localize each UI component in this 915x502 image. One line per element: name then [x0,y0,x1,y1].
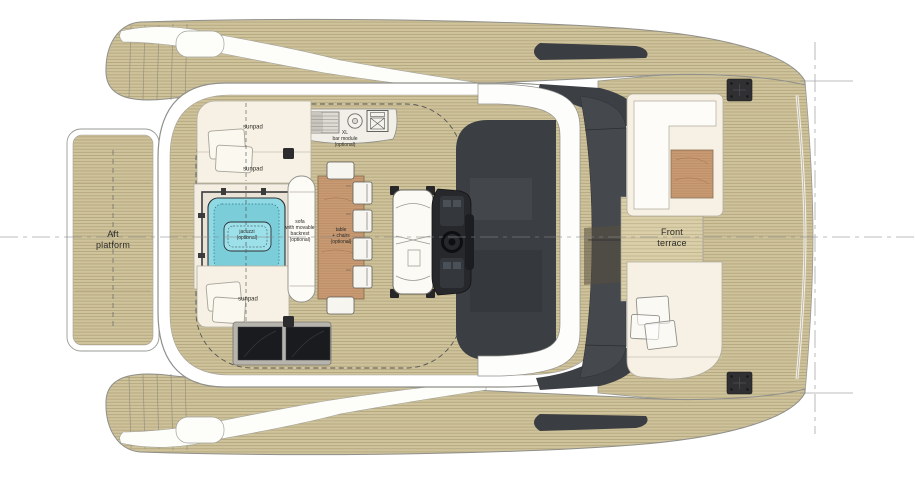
aft-platform [67,129,159,351]
chair [327,162,354,179]
bar-sink-drain [352,118,357,123]
deck-plan-drawing [0,0,915,502]
sunpad-zone-top [197,101,311,183]
bar-stove-icon [367,111,388,132]
flybridge-sofa [288,176,315,302]
sunpad-zone-bottom [197,266,289,327]
front-sofa [627,94,723,216]
glass-reflection-lower [470,250,542,312]
column-wood-reflection [584,225,625,285]
sofa-body [288,176,315,302]
glass-reflection-upper [470,178,532,220]
deck-fitting [283,316,294,327]
deck-plan-canvas: Aft platform Front terrace sunpad sunpad… [0,0,915,502]
console-side-pod [465,214,474,270]
bow-cleat-bottom [727,372,752,394]
console-screen [443,200,451,207]
bench-body [393,190,433,294]
steering-wheel-hub [449,239,456,246]
console-screen [453,200,461,207]
helm-console [432,189,474,295]
skylight-pane [238,327,282,360]
skylight-hatch [233,322,331,365]
console-screen [453,262,461,269]
deck-fitting [283,148,294,159]
pillow [212,297,246,324]
dining-set [318,162,372,314]
helm-bench [390,186,435,298]
skylight-pane [286,327,330,360]
chair [327,297,354,314]
flybridge [158,83,646,390]
bar-module [299,109,397,144]
front-sunpad [627,262,722,379]
hull-seat-pod [176,31,224,57]
front-coffee-table [671,150,713,198]
bow-cleat-top [727,79,752,101]
pillow [645,320,678,349]
console-screen [443,262,451,269]
pillow [215,145,252,173]
